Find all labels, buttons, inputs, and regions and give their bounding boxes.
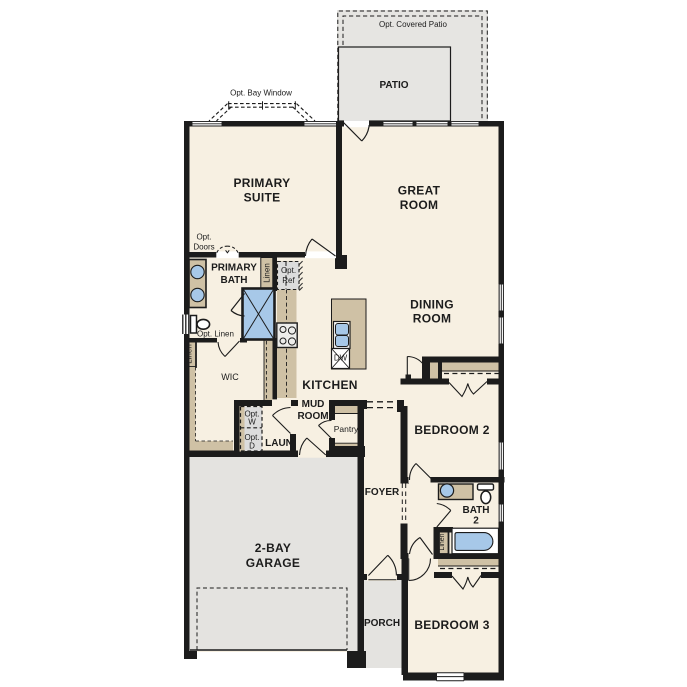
svg-text:LAUN: LAUN bbox=[265, 438, 293, 449]
svg-text:DW: DW bbox=[334, 354, 348, 363]
svg-text:Opt.: Opt. bbox=[281, 266, 296, 275]
svg-text:BEDROOM 2: BEDROOM 2 bbox=[414, 423, 489, 437]
svg-text:Linen: Linen bbox=[185, 344, 194, 364]
svg-text:2-BAY: 2-BAY bbox=[255, 541, 291, 555]
svg-text:ROOM: ROOM bbox=[400, 198, 439, 212]
svg-text:WIC: WIC bbox=[221, 372, 239, 382]
svg-text:DINING: DINING bbox=[410, 298, 454, 312]
svg-text:BATH: BATH bbox=[220, 275, 247, 286]
svg-text:PRIMARY: PRIMARY bbox=[211, 263, 257, 274]
svg-text:BATH: BATH bbox=[462, 505, 489, 516]
svg-text:Doors: Doors bbox=[193, 243, 214, 252]
svg-text:Linen: Linen bbox=[439, 533, 446, 550]
svg-text:Linen: Linen bbox=[263, 263, 272, 283]
svg-text:GREAT: GREAT bbox=[398, 184, 441, 198]
svg-text:ROOM: ROOM bbox=[413, 312, 452, 326]
svg-text:PORCH: PORCH bbox=[364, 618, 400, 629]
svg-text:BEDROOM 3: BEDROOM 3 bbox=[414, 618, 489, 632]
svg-text:ROOM: ROOM bbox=[297, 411, 328, 422]
svg-text:D: D bbox=[249, 442, 255, 451]
svg-text:Opt.: Opt. bbox=[196, 233, 211, 242]
svg-text:PRIMARY: PRIMARY bbox=[234, 176, 291, 190]
svg-text:MUD: MUD bbox=[302, 399, 325, 410]
svg-text:Ref: Ref bbox=[282, 276, 295, 285]
svg-text:Pantry: Pantry bbox=[334, 424, 359, 434]
svg-text:GARAGE: GARAGE bbox=[246, 556, 300, 570]
svg-text:PATIO: PATIO bbox=[379, 80, 408, 91]
svg-text:KITCHEN: KITCHEN bbox=[302, 378, 357, 392]
svg-text:SUITE: SUITE bbox=[244, 191, 281, 205]
svg-text:Opt. Covered Patio: Opt. Covered Patio bbox=[379, 20, 448, 29]
svg-text:FOYER: FOYER bbox=[365, 487, 400, 498]
svg-text:Opt. Bay Window: Opt. Bay Window bbox=[230, 89, 292, 98]
svg-text:2: 2 bbox=[473, 516, 479, 527]
svg-text:Opt. Linen: Opt. Linen bbox=[197, 330, 234, 339]
svg-text:W: W bbox=[248, 418, 256, 427]
